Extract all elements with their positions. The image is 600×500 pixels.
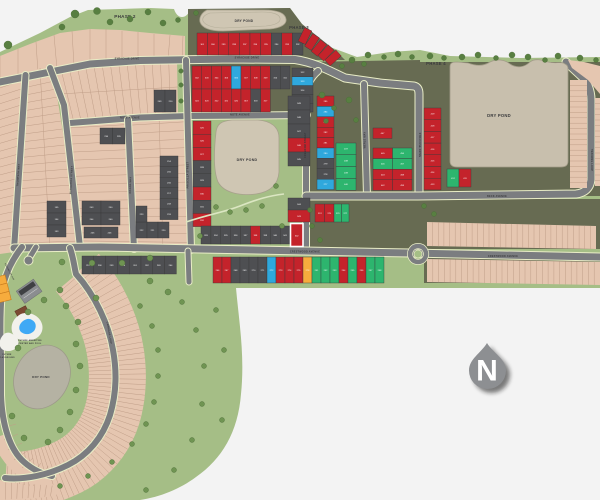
svg-text:CENTER AND POOL: CENTER AND POOL xyxy=(18,342,42,345)
svg-text:DRY POND: DRY POND xyxy=(235,19,254,23)
svg-text:PHASE 3: PHASE 3 xyxy=(289,25,309,30)
svg-text:SYRACUSE DRIVE: SYRACUSE DRIVE xyxy=(235,57,260,60)
svg-text:FUTURE AMENITIES: FUTURE AMENITIES xyxy=(18,339,42,342)
svg-text:N: N xyxy=(476,355,498,388)
svg-text:DRY POND: DRY POND xyxy=(487,113,511,118)
svg-text:WERLE WAY: WERLE WAY xyxy=(364,131,367,148)
svg-text:NOTE AVENUE: NOTE AVENUE xyxy=(230,114,250,117)
svg-text:DRY POND: DRY POND xyxy=(32,375,50,379)
svg-text:SYRACUSE DRIVE: SYRACUSE DRIVE xyxy=(418,133,421,158)
svg-text:SYRACUSE DRIVE: SYRACUSE DRIVE xyxy=(115,58,140,61)
svg-text:PRISCILLA STREET: PRISCILLA STREET xyxy=(187,161,190,188)
svg-text:FUTURE: FUTURE xyxy=(2,354,12,356)
svg-text:MAGNA WAY: MAGNA WAY xyxy=(129,176,133,193)
svg-text:NOTE AVENUE: NOTE AVENUE xyxy=(120,117,140,120)
svg-text:DRY POND: DRY POND xyxy=(237,158,258,162)
svg-text:BECK AVENUE: BECK AVENUE xyxy=(487,195,507,198)
svg-text:TRAINING LOOP: TRAINING LOOP xyxy=(590,149,593,171)
svg-text:PHASE 4: PHASE 4 xyxy=(426,61,446,66)
svg-text:FREEDOM STREET: FREEDOM STREET xyxy=(304,132,307,158)
svg-text:CRESTWOOD AVENUE: CRESTWOOD AVENUE xyxy=(488,255,518,258)
svg-text:PLAYGROUND: PLAYGROUND xyxy=(0,356,15,359)
svg-text:CRESTWOOD AVENUE: CRESTWOOD AVENUE xyxy=(290,251,320,254)
